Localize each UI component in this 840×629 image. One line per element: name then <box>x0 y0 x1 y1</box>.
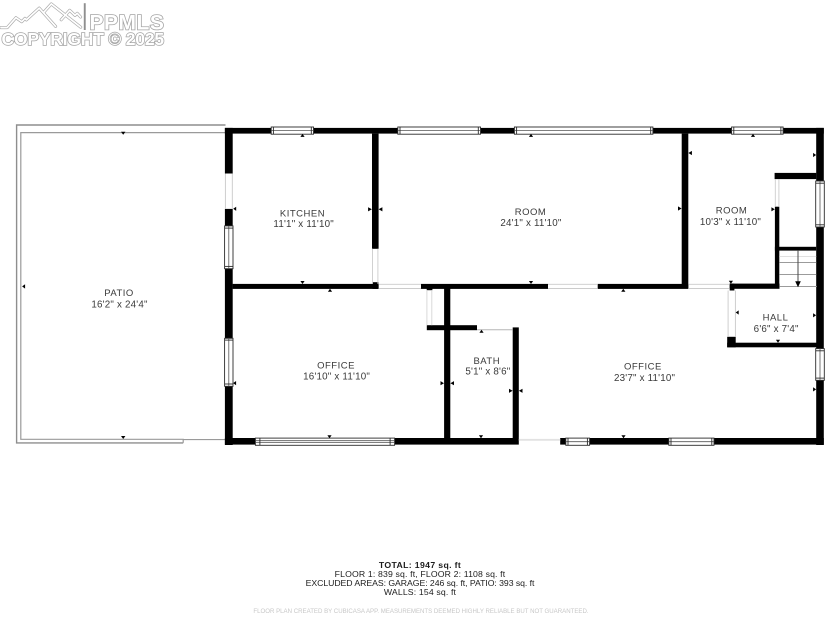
svg-text:PATIO: PATIO <box>104 288 134 299</box>
svg-text:ROOM: ROOM <box>515 207 547 218</box>
svg-text:COPYRIGHT © 2025: COPYRIGHT © 2025 <box>2 29 165 49</box>
svg-text:HALL: HALL <box>763 312 789 323</box>
svg-text:11'1" x 11'10": 11'1" x 11'10" <box>273 219 334 230</box>
svg-text:10'3" x 11'10": 10'3" x 11'10" <box>700 217 762 228</box>
svg-text:23'7" x 11'10": 23'7" x 11'10" <box>614 373 676 384</box>
svg-text:6'6" x 7'4": 6'6" x 7'4" <box>754 324 799 335</box>
svg-text:ROOM: ROOM <box>716 205 748 216</box>
svg-text:16'10" x 11'10": 16'10" x 11'10" <box>303 371 370 382</box>
svg-text:FLOOR PLAN CREATED BY CUBICASA: FLOOR PLAN CREATED BY CUBICASA APP. MEAS… <box>253 608 588 615</box>
svg-text:WALLS: 154 sq. ft: WALLS: 154 sq. ft <box>384 587 457 597</box>
svg-text:OFFICE: OFFICE <box>624 362 662 373</box>
svg-text:16'2" x 24'4": 16'2" x 24'4" <box>91 299 148 310</box>
svg-text:5'1" x 8'6": 5'1" x 8'6" <box>465 367 510 378</box>
svg-text:BATH: BATH <box>473 356 500 367</box>
svg-text:24'1" x 11'10": 24'1" x 11'10" <box>500 218 562 229</box>
svg-text:OFFICE: OFFICE <box>317 361 355 372</box>
